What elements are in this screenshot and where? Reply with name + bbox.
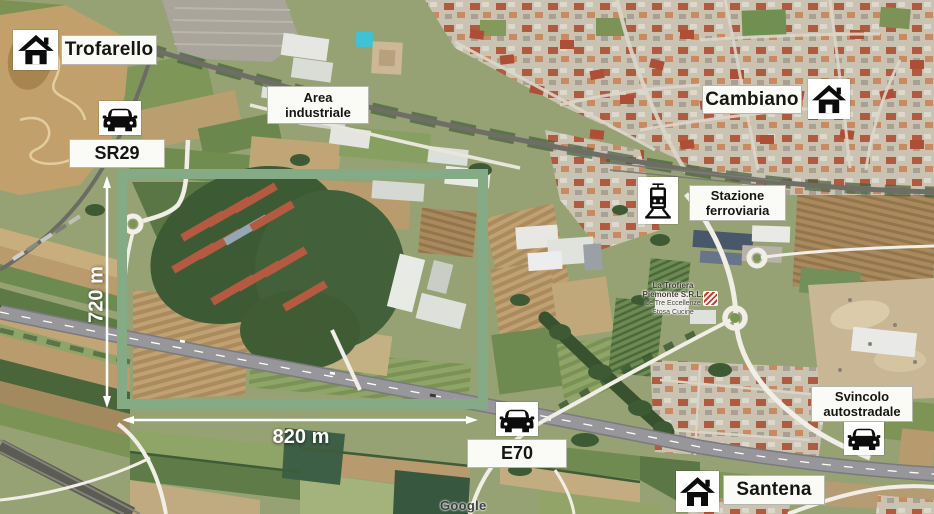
label-svincolo-line1: Svincolo — [835, 389, 889, 404]
cambiano-marker — [808, 79, 850, 119]
gravel-area — [808, 278, 934, 400]
car-icon — [102, 105, 138, 132]
label-trofarello: Trofarello — [61, 35, 157, 65]
label-svincolo-line2: autostradale — [823, 404, 900, 419]
annotated-satellite-figure: La Trofiera Piemonte S.R.L. Le Tre Eccel… — [0, 0, 934, 514]
site-boundary-outline — [117, 169, 488, 409]
label-stazione-ferroviaria: Stazione ferroviaria — [689, 185, 786, 221]
train-icon — [642, 181, 674, 221]
e70-marker — [496, 402, 538, 436]
business-name-line1: La Trofiera — [628, 281, 718, 290]
car-icon — [847, 425, 881, 451]
home-icon — [812, 84, 846, 115]
label-santena: Santena — [723, 475, 825, 505]
label-e70-text: E70 — [501, 443, 533, 464]
car-icon — [499, 406, 535, 433]
map-attribution: Google — [440, 498, 487, 513]
label-trofarello-text: Trofarello — [65, 39, 154, 61]
label-stazione-line1: Stazione — [711, 188, 764, 203]
trofarello-marker — [13, 30, 58, 70]
business-name-line4: Stosa Cucine — [628, 308, 718, 317]
label-svincolo-autostradale: Svincolo autostradale — [811, 386, 913, 422]
label-cambiano: Cambiano — [702, 85, 802, 114]
label-area-line2: industriale — [285, 105, 351, 120]
sr29-marker — [99, 101, 141, 135]
stazione-marker — [638, 177, 678, 224]
santena-marker — [676, 471, 719, 512]
home-icon — [680, 476, 715, 508]
home-icon — [18, 34, 54, 66]
label-stazione-line2: ferroviaria — [706, 203, 770, 218]
business-logo-icon — [703, 291, 718, 306]
label-santena-text: Santena — [736, 479, 811, 501]
width-measurement-label: 820 m — [261, 426, 341, 449]
label-area-line1: Area — [304, 90, 333, 105]
label-cambiano-text: Cambiano — [705, 89, 798, 111]
height-measurement-label: 720 m — [86, 255, 109, 335]
label-sr29-text: SR29 — [94, 143, 139, 164]
label-sr29: SR29 — [69, 139, 165, 168]
label-area-industriale: Area industriale — [267, 86, 369, 124]
svincolo-marker — [844, 421, 884, 455]
label-e70: E70 — [467, 439, 567, 468]
